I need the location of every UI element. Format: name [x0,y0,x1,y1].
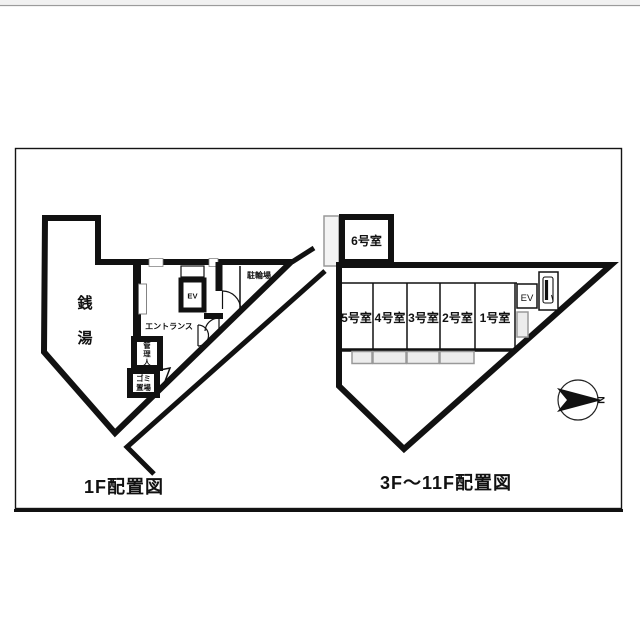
manager-label-char: 人 [143,358,151,367]
balcony [324,216,339,266]
room-label: 5号室 [341,310,372,325]
garbage-label-line: 置場 [136,383,151,392]
stairs-box [539,272,558,310]
entrance-label: エントランス [145,322,193,331]
door-gap [149,259,163,267]
room-label: 4号室 [375,310,406,325]
balcony [352,352,372,364]
room-label: 1号室 [480,310,511,325]
balcony [440,352,474,364]
service-box [517,312,528,337]
room-label: 3号室 [408,310,439,325]
garbage-label-line: ゴミ [136,374,151,383]
ev-label-upper: EV [521,293,534,304]
bicycle-parking-label: 駐輪場 [247,270,271,280]
room6-label: 6号室 [351,233,382,248]
balcony [407,352,439,364]
top-band [0,0,640,5]
ev-label-1f: EV [187,292,198,301]
door-panel [139,284,147,314]
sento-label-char: 湯 [77,330,92,347]
north-label: N [595,396,607,404]
balcony [373,352,406,364]
caption-1f: 1F配置図 [84,477,164,497]
shaft-duct [181,266,204,277]
sento-label-char: 銭 [76,294,92,312]
floor-plan-document: EV 管 理 人 ゴミ 置場 駐輪場 銭 湯 エントランス 1F配置図 6号室 [0,0,640,630]
room-label: 2号室 [442,310,473,325]
caption-upper: 3F～11F配置図 [380,473,512,493]
